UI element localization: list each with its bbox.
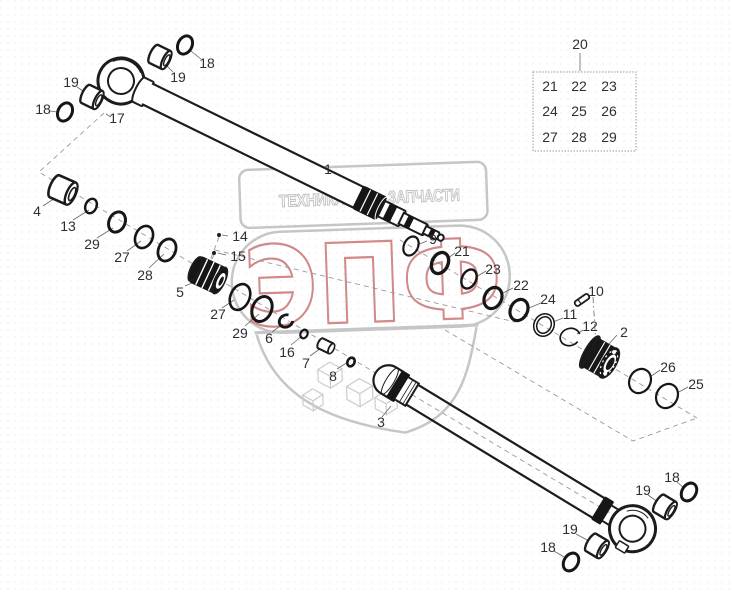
callout-25: 25 — [688, 376, 704, 392]
callout-27: 27 — [210, 306, 226, 322]
callout-21: 21 — [454, 243, 470, 259]
callout-27: 27 — [114, 249, 130, 265]
callout-12: 12 — [582, 318, 598, 334]
callout-10: 10 — [588, 283, 604, 299]
setscrew-15-marker — [212, 251, 216, 255]
callout-18: 18 — [540, 539, 556, 555]
setscrew-14-marker — [217, 233, 221, 237]
parts-diagram-page: ТЕХНИКА ЗАПЧАСТИ ЭПФ — [0, 0, 732, 595]
parts-table-cell-28: 28 — [571, 129, 587, 145]
callout-18: 18 — [199, 55, 215, 71]
parts-table-cell-24: 24 — [542, 103, 558, 119]
callout-18: 18 — [664, 469, 680, 485]
parts-table-cell-27: 27 — [542, 129, 558, 145]
callout-23: 23 — [485, 261, 501, 277]
parts-table-cell-23: 23 — [601, 78, 617, 94]
parts-table-title: 20 — [572, 36, 588, 52]
parts-table-cell-26: 26 — [601, 103, 617, 119]
callout-16: 16 — [279, 344, 295, 360]
callout-28: 28 — [137, 267, 153, 283]
callout-19: 19 — [63, 74, 79, 90]
callout-13: 13 — [60, 218, 76, 234]
callout-19: 19 — [562, 521, 578, 537]
callout-11: 11 — [563, 306, 578, 322]
callout-2: 2 — [620, 324, 628, 340]
callout-5: 5 — [176, 284, 184, 300]
callout-18: 18 — [35, 101, 51, 117]
callout-19: 19 — [170, 69, 186, 85]
callout-15: 15 — [230, 248, 246, 264]
callout-1: 1 — [324, 161, 332, 177]
callout-29: 29 — [84, 236, 100, 252]
callout-3: 3 — [377, 414, 385, 430]
callout-26: 26 — [660, 359, 676, 375]
callout-17: 17 — [109, 110, 125, 126]
callout-9: 9 — [429, 231, 437, 247]
parts-table-cell-25: 25 — [571, 103, 587, 119]
parts-table-cell-29: 29 — [601, 129, 617, 145]
watermark-banner-right-text: ЗАПЧАСТИ — [388, 186, 461, 208]
callout-22: 22 — [513, 277, 529, 293]
callout-7: 7 — [302, 355, 310, 371]
callout-14: 14 — [232, 228, 248, 244]
parts-table-cell-22: 22 — [571, 78, 587, 94]
callout-6: 6 — [265, 330, 273, 346]
callout-19: 19 — [635, 482, 651, 498]
callout-29: 29 — [232, 325, 248, 341]
callout-24: 24 — [540, 291, 556, 307]
callout-4: 4 — [33, 203, 41, 219]
parts-table-cell-21: 21 — [542, 78, 558, 94]
exploded-parts-diagram: ТЕХНИКА ЗАПЧАСТИ ЭПФ — [0, 0, 732, 595]
callout-8: 8 — [329, 368, 337, 384]
